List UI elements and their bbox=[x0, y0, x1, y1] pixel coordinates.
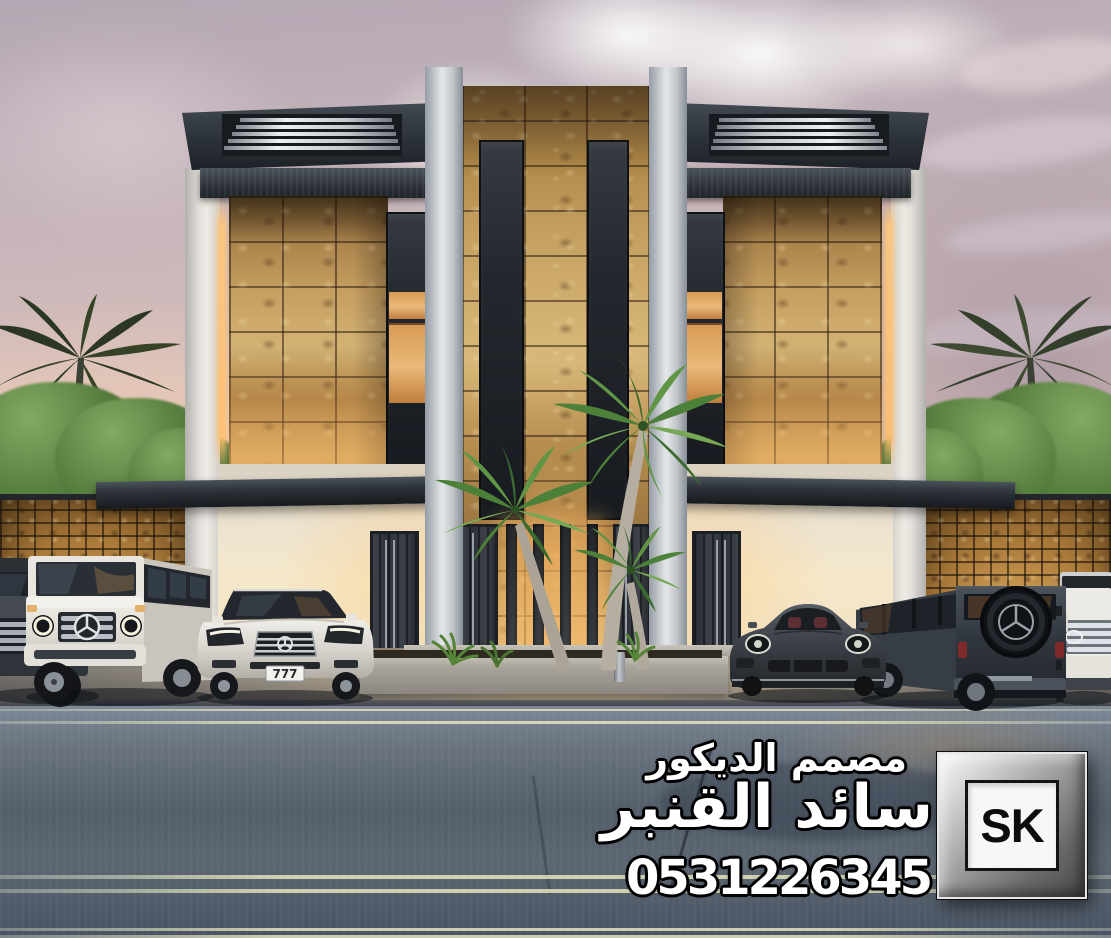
car-white-gwagon bbox=[24, 544, 216, 708]
watermark-designer-name: سائد القنبر bbox=[601, 772, 933, 842]
sk-logo-inner: SK bbox=[968, 783, 1056, 868]
pergola-slat bbox=[715, 132, 879, 136]
right-pergola bbox=[649, 102, 929, 170]
car-porsche-911 bbox=[724, 594, 892, 704]
architectural-render: 777 bbox=[0, 0, 1111, 938]
sk-logo: SK bbox=[937, 752, 1087, 899]
watermark: مصمم الديكور سائد القنبر 0531226345 SK bbox=[600, 728, 1111, 918]
sk-logo-text: SK bbox=[980, 798, 1043, 853]
sedan-license-plate: 777 bbox=[272, 667, 297, 681]
car-white-sedan: 777 bbox=[194, 584, 376, 708]
palm-crown-tall bbox=[553, 356, 729, 498]
planter-grass bbox=[433, 633, 654, 666]
entry-palm-trees bbox=[395, 330, 750, 675]
lane-line bbox=[0, 928, 1111, 931]
right-fascia-band bbox=[649, 168, 911, 198]
pergola-slat bbox=[713, 139, 883, 143]
right-led-strip bbox=[884, 198, 894, 470]
pergola-slat bbox=[717, 125, 875, 129]
pergola-slat bbox=[711, 146, 887, 150]
palm-crown-left bbox=[435, 438, 593, 566]
lane-line bbox=[0, 721, 1111, 724]
watermark-phone: 0531226345 bbox=[626, 850, 930, 906]
right-window-lit-pane bbox=[685, 292, 722, 319]
pergola-slat bbox=[719, 118, 871, 122]
